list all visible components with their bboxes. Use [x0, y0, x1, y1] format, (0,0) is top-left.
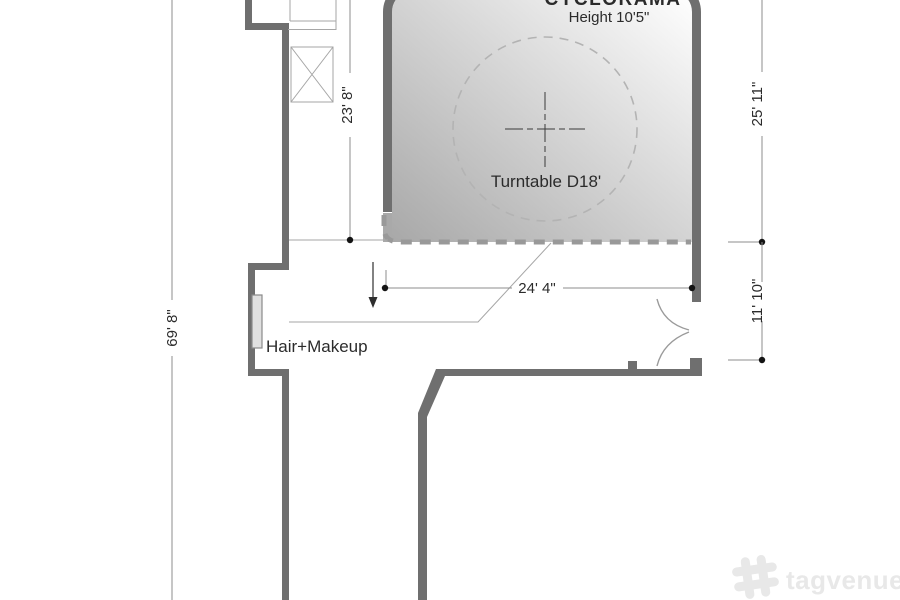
counter-outline: [288, 0, 336, 30]
bottom-wall: [418, 358, 702, 600]
cyclorama-floor-fill: [392, 0, 692, 242]
floor-plan-canvas: CYCLORAMA Height 10'5" Turntable D18' Ha…: [0, 0, 900, 600]
left-wall-upper: [282, 23, 289, 270]
tagvenue-logo-text: tagvenue: [786, 565, 900, 595]
left-wall-lower: [282, 369, 289, 600]
dimension-floor-width-text: 24' 4": [518, 280, 555, 297]
dimension-entrance-wall: 11' 10": [728, 242, 766, 363]
watermark: tagvenue: [730, 553, 900, 600]
hair-makeup-mirror: [252, 295, 262, 348]
dimension-overall-height: 69' 8": [164, 0, 181, 600]
dimension-cyc-right-depth: 25' 11": [728, 0, 766, 245]
floor-guide-lines: [289, 240, 551, 322]
dimension-cyc-left-depth: 23' 8": [339, 0, 356, 243]
tagvenue-logo-icon: [730, 553, 780, 600]
cyclorama-area: CYCLORAMA Height 10'5" Turntable D18': [383, 0, 697, 302]
direction-arrow-icon: [369, 262, 378, 308]
dimension-cyc-right-depth-text: 25' 11": [749, 82, 766, 127]
dimension-overall-height-text: 69' 8": [164, 309, 181, 346]
dimension-entrance-wall-text: 11' 10": [749, 279, 766, 324]
double-door-swing-icon: [657, 299, 689, 366]
hair-makeup-label: Hair+Makeup: [266, 337, 368, 356]
top-fixtures: [288, 0, 336, 102]
cyclorama-height-label: Height 10'5": [569, 9, 650, 26]
dimension-floor-width: 24' 4": [382, 270, 695, 297]
floor-plan-drawing: CYCLORAMA Height 10'5" Turntable D18' Ha…: [0, 0, 900, 600]
floor-step-line: [289, 243, 551, 322]
dimension-cyc-left-depth-text: 23' 8": [339, 86, 356, 123]
turntable-label: Turntable D18': [491, 172, 601, 191]
shaft-crossed-box: [291, 47, 333, 102]
